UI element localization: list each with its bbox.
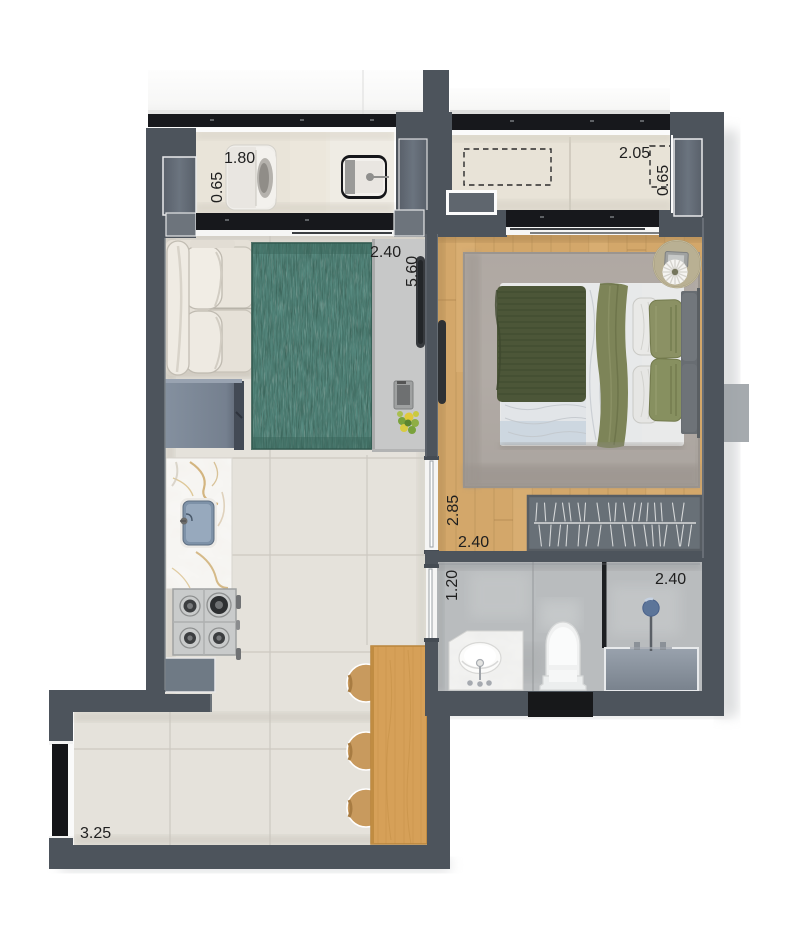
svg-text:2.85: 2.85 xyxy=(445,495,462,526)
svg-text:2.40: 2.40 xyxy=(458,534,489,551)
svg-text:1.80: 1.80 xyxy=(224,150,255,167)
svg-text:2.05: 2.05 xyxy=(619,145,650,162)
svg-text:0.65: 0.65 xyxy=(209,172,226,203)
svg-text:0.65: 0.65 xyxy=(655,165,672,196)
svg-text:3.25: 3.25 xyxy=(80,825,111,842)
svg-text:5.60: 5.60 xyxy=(404,256,421,287)
svg-text:2.40: 2.40 xyxy=(655,571,686,588)
svg-text:2.40: 2.40 xyxy=(370,244,401,261)
svg-text:1.20: 1.20 xyxy=(444,570,461,601)
